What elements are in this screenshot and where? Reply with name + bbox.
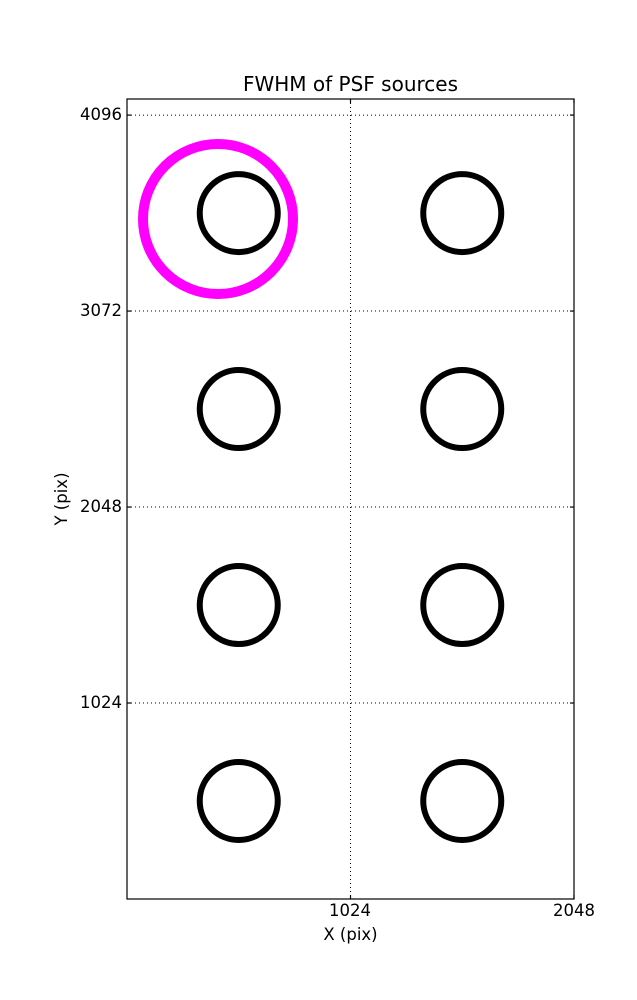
psf-source-marker-5 [423,566,501,644]
psf-source-marker-3 [423,370,501,448]
psf-source-marker-1 [423,174,501,252]
psf-source-marker-6 [200,762,278,840]
ytick-label-3072: 3072 [52,301,122,321]
figure-canvas: FWHM of PSF sources 4096 3072 2048 1024 … [0,0,637,1000]
ytick-label-1024: 1024 [52,693,122,713]
x-axis-label: X (pix) [270,925,431,945]
chart-title: FWHM of PSF sources [127,72,574,96]
xtick-label-1024: 1024 [310,901,390,921]
highlight-ring [143,144,293,294]
psf-source-marker-0 [200,174,278,252]
ytick-label-4096: 4096 [52,105,122,125]
psf-source-marker-7 [423,762,501,840]
y-axis-label: Y (pix) [52,472,72,525]
psf-source-marker-2 [200,370,278,448]
xtick-label-2048: 2048 [534,901,614,921]
psf-source-marker-4 [200,566,278,644]
